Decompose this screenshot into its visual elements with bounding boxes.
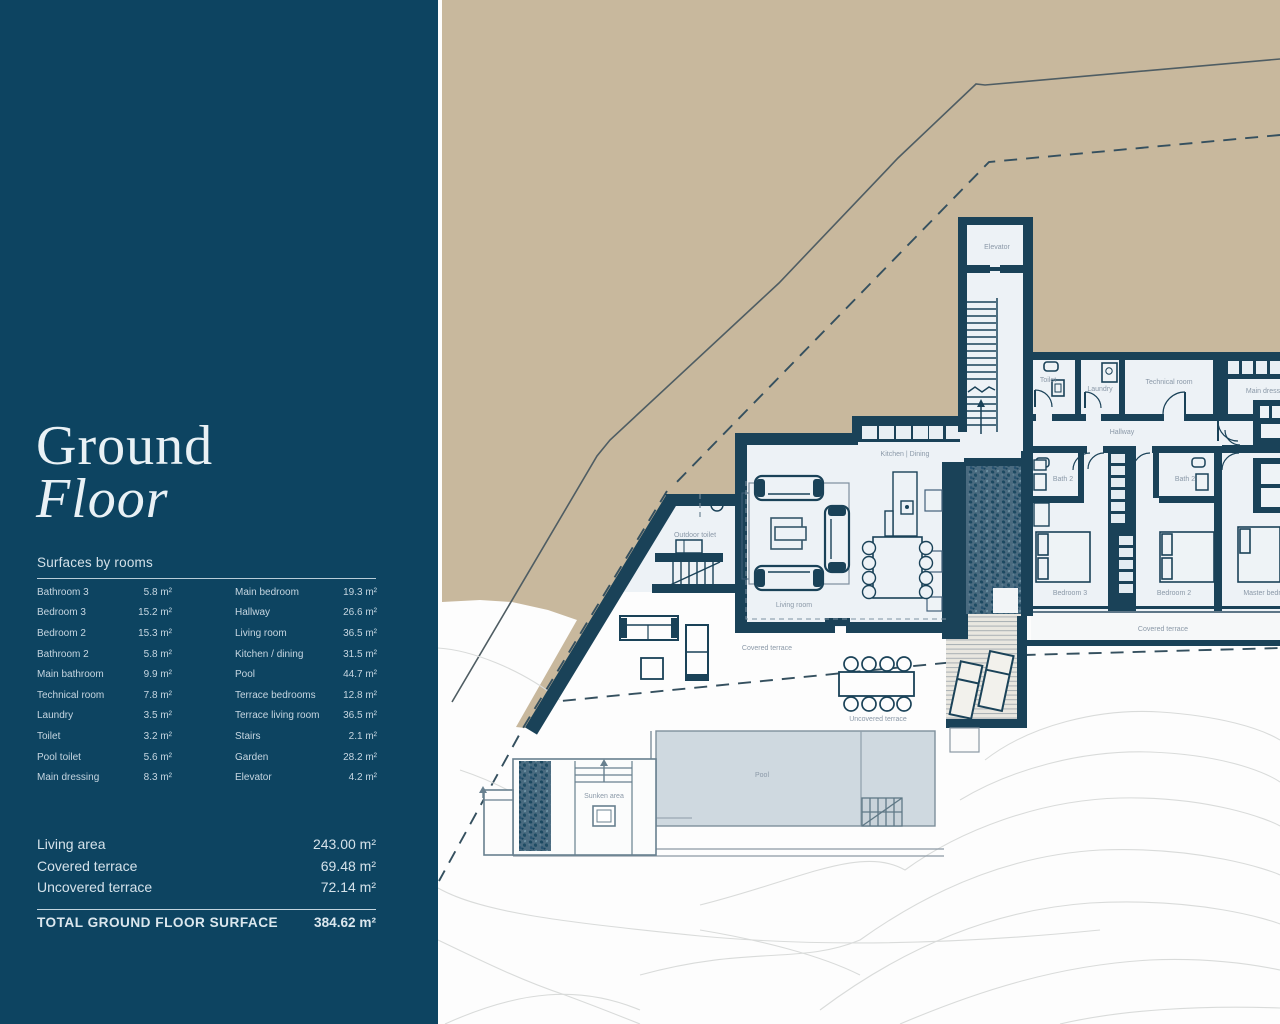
svg-text:Toilet: Toilet bbox=[1040, 377, 1056, 384]
svg-text:Master bedr: Master bedr bbox=[1243, 590, 1280, 597]
svg-text:Outdoor toilet: Outdoor toilet bbox=[674, 532, 716, 539]
svg-text:Hallway: Hallway bbox=[1110, 429, 1135, 436]
svg-text:Pool: Pool bbox=[755, 772, 769, 779]
svg-text:Main dress: Main dress bbox=[1246, 388, 1280, 395]
svg-text:Technical room: Technical room bbox=[1145, 379, 1192, 386]
svg-text:Bath 2: Bath 2 bbox=[1175, 476, 1195, 483]
svg-text:Covered terrace: Covered terrace bbox=[742, 645, 792, 652]
svg-text:Bedroom 2: Bedroom 2 bbox=[1157, 590, 1191, 597]
svg-text:Covered terrace: Covered terrace bbox=[1138, 626, 1188, 633]
svg-text:Living room: Living room bbox=[776, 602, 812, 609]
svg-text:Kitchen | Dining: Kitchen | Dining bbox=[881, 451, 930, 458]
svg-text:Elevator: Elevator bbox=[984, 244, 1010, 251]
svg-text:Bedroom 3: Bedroom 3 bbox=[1053, 590, 1087, 597]
svg-text:Sunken area: Sunken area bbox=[584, 793, 624, 800]
svg-text:Bath 2: Bath 2 bbox=[1053, 476, 1073, 483]
svg-text:Laundry: Laundry bbox=[1087, 386, 1113, 393]
svg-text:Uncovered terrace: Uncovered terrace bbox=[849, 716, 907, 723]
